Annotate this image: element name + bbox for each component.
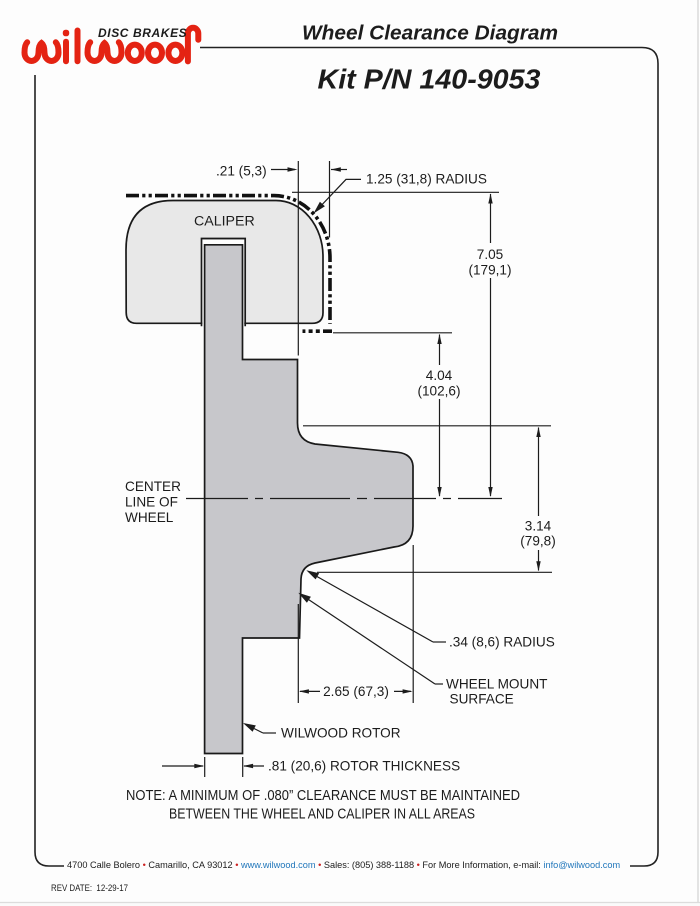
svg-text:Kit P/N 140-9053: Kit P/N 140-9053 <box>318 64 541 95</box>
svg-text:SURFACE: SURFACE <box>450 692 514 707</box>
svg-text:NOTE: A MINIMUM OF .080” CLEAR: NOTE: A MINIMUM OF .080” CLEARANCE MUST … <box>126 788 520 804</box>
svg-text:LINE OF: LINE OF <box>125 495 178 510</box>
svg-text:(102,6): (102,6) <box>417 384 460 399</box>
svg-text:WHEEL: WHEEL <box>125 510 174 525</box>
svg-text:BETWEEN THE WHEEL AND CALIPER: BETWEEN THE WHEEL AND CALIPER IN ALL ARE… <box>169 807 475 823</box>
svg-text:7.05: 7.05 <box>477 247 503 262</box>
svg-text:Wheel Clearance Diagram: Wheel Clearance Diagram <box>302 22 558 45</box>
svg-text:1.25 (31,8) RADIUS: 1.25 (31,8) RADIUS <box>366 172 487 187</box>
svg-text:(179,1): (179,1) <box>468 263 511 278</box>
svg-text:CENTER: CENTER <box>125 479 181 494</box>
svg-text:4700 Calle Bolero • Camarillo,: 4700 Calle Bolero • Camarillo, CA 93012 … <box>67 860 620 870</box>
svg-text:4.04: 4.04 <box>426 368 453 383</box>
svg-text:CALIPER: CALIPER <box>194 214 255 230</box>
svg-text:3.14: 3.14 <box>525 519 552 534</box>
svg-text:(79,8): (79,8) <box>520 534 556 549</box>
svg-text:WILWOOD ROTOR: WILWOOD ROTOR <box>281 726 401 741</box>
svg-text:.21 (5,3): .21 (5,3) <box>216 164 267 179</box>
svg-text:WHEEL MOUNT: WHEEL MOUNT <box>446 677 547 692</box>
svg-text:DISC BRAKES: DISC BRAKES <box>98 26 187 40</box>
svg-text:.81 (20,6) ROTOR THICKNESS: .81 (20,6) ROTOR THICKNESS <box>268 759 460 774</box>
svg-text:.34 (8,6) RADIUS: .34 (8,6) RADIUS <box>449 635 555 650</box>
svg-text:2.65 (67,3): 2.65 (67,3) <box>323 684 389 699</box>
svg-text:REV DATE: 12-29-17: REV DATE: 12-29-17 <box>51 883 128 893</box>
